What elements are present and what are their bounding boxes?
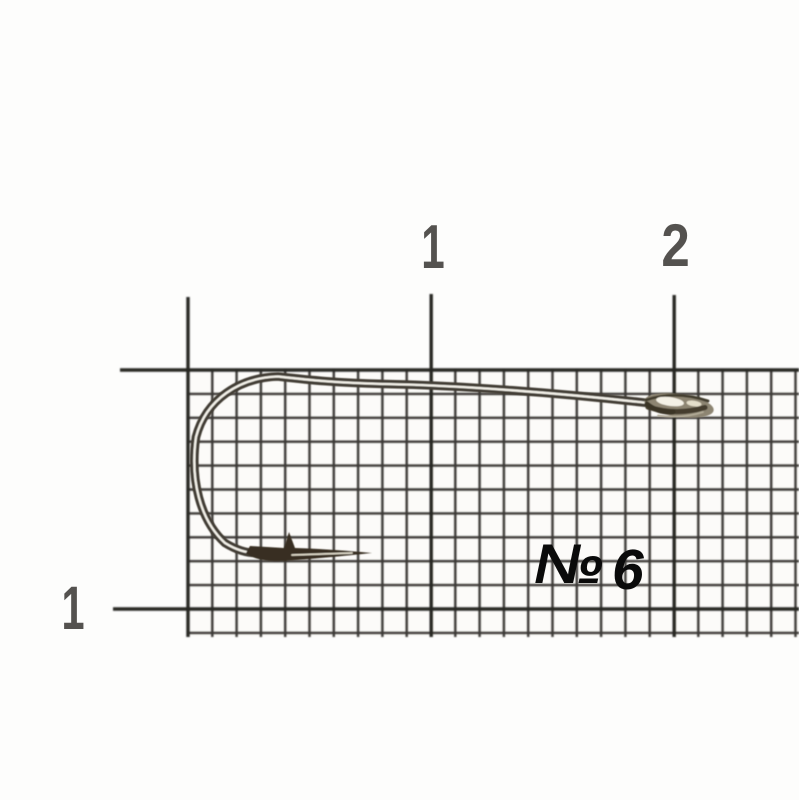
svg-text:1: 1	[421, 213, 444, 282]
svg-text:2: 2	[661, 212, 689, 279]
svg-text:1: 1	[61, 575, 84, 643]
svg-text:№: №	[534, 532, 603, 595]
svg-text:6: 6	[612, 538, 644, 602]
